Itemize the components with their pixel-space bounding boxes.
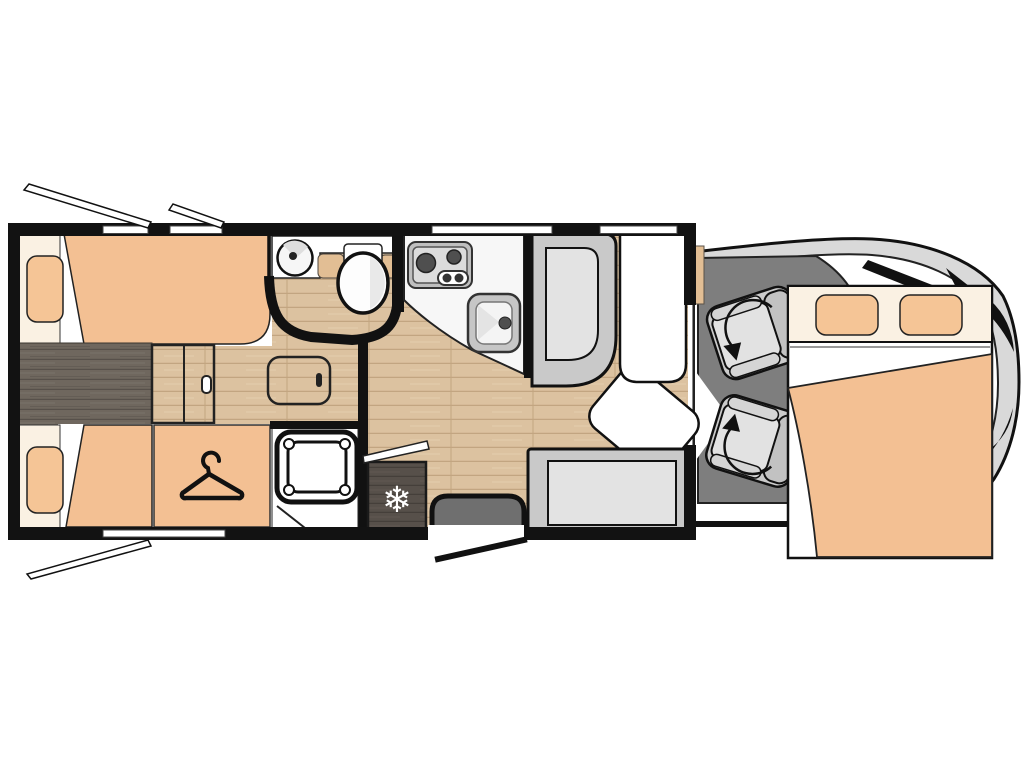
snowflake-icon: ❄ bbox=[382, 480, 412, 521]
burner-large bbox=[417, 254, 436, 273]
shower-room bbox=[270, 421, 362, 528]
floorplan-svg: ❄ bbox=[0, 0, 1024, 768]
floor-hatch-handle bbox=[316, 373, 322, 387]
dropdown-duvet bbox=[788, 354, 992, 557]
side-bench bbox=[528, 449, 692, 537]
shower-top-wall bbox=[270, 421, 362, 429]
dinette-bench-cushion bbox=[546, 248, 598, 360]
burner-small bbox=[447, 250, 461, 264]
shower-jet-icon bbox=[340, 485, 350, 495]
bulkhead-wall-bottom bbox=[684, 445, 696, 540]
washbasin-drain bbox=[289, 252, 297, 260]
window-bottom bbox=[103, 530, 225, 537]
rear-wall bbox=[8, 223, 20, 540]
dropdown-pillow-left bbox=[816, 295, 878, 335]
pillow-bottom bbox=[27, 447, 63, 513]
door-handle bbox=[202, 376, 211, 393]
shower-jet-icon bbox=[284, 485, 294, 495]
side-bench-cushion bbox=[548, 461, 676, 525]
drop-down-bed bbox=[788, 286, 992, 558]
habitation-section: ❄ bbox=[16, 226, 705, 542]
window-lounge bbox=[600, 226, 677, 234]
bathroom-right-wall bbox=[392, 226, 404, 312]
bulkhead-wall-top bbox=[684, 223, 696, 305]
entry-door-opening bbox=[428, 525, 524, 542]
dinette-bench bbox=[532, 234, 616, 386]
shower-fridge-wall bbox=[358, 338, 368, 530]
shower-jet-icon bbox=[284, 439, 294, 449]
floorplan-canvas: ❄ bbox=[0, 0, 1024, 768]
bedroom-walkway bbox=[18, 343, 152, 425]
hob-knob bbox=[455, 274, 464, 283]
dropdown-pillow-right bbox=[900, 295, 962, 335]
table bbox=[620, 230, 686, 382]
window-rear-top-1 bbox=[103, 226, 148, 234]
window-kitchen bbox=[432, 226, 552, 234]
pillow-top bbox=[27, 256, 63, 322]
shower-jet-icon bbox=[340, 439, 350, 449]
shower-tray-inner bbox=[288, 442, 346, 492]
sink-tap bbox=[499, 317, 511, 329]
window-rear-top-2 bbox=[170, 226, 222, 234]
mattress-top bbox=[64, 234, 270, 344]
hob-knob bbox=[443, 274, 452, 283]
